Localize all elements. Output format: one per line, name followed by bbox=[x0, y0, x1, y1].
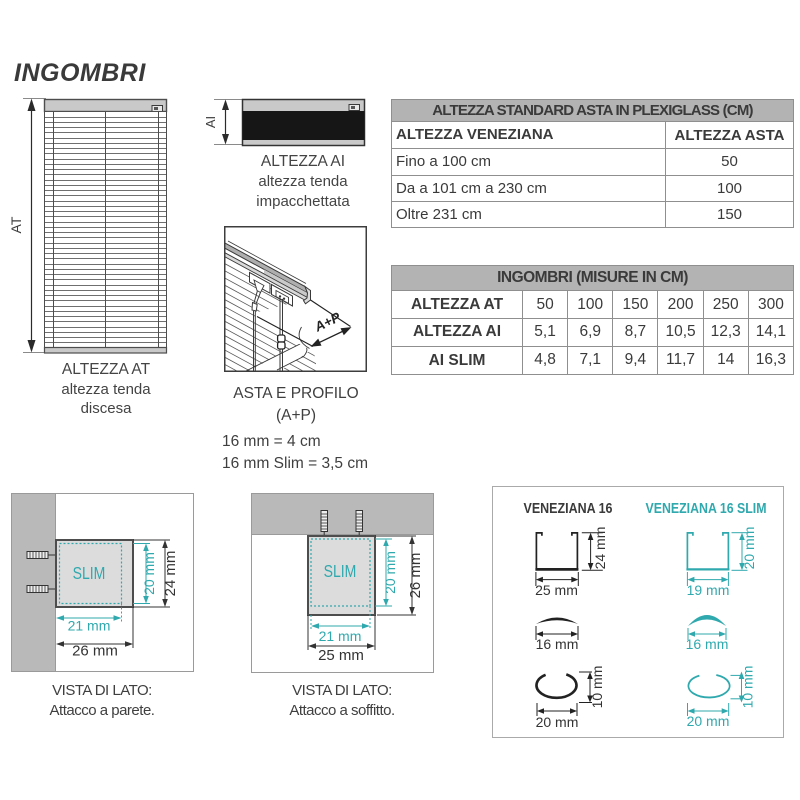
svg-text:AT: AT bbox=[8, 216, 24, 233]
svg-text:16 mm: 16 mm bbox=[686, 636, 729, 652]
svg-text:24 mm: 24 mm bbox=[592, 527, 608, 570]
svg-text:26 mm: 26 mm bbox=[72, 643, 118, 660]
svg-text:10 mm: 10 mm bbox=[740, 666, 756, 709]
svg-text:25 mm: 25 mm bbox=[535, 582, 578, 598]
svg-text:25 mm: 25 mm bbox=[318, 647, 364, 664]
svg-text:21 mm: 21 mm bbox=[68, 618, 111, 634]
svg-text:19 mm: 19 mm bbox=[687, 582, 730, 598]
svg-text:VENEZIANA 16: VENEZIANA 16 bbox=[524, 500, 613, 517]
svg-text:20 mm: 20 mm bbox=[141, 552, 157, 595]
svg-text:SLIM: SLIM bbox=[73, 563, 106, 583]
svg-text:24 mm: 24 mm bbox=[162, 551, 179, 597]
svg-text:20 mm: 20 mm bbox=[687, 713, 730, 729]
svg-text:10 mm: 10 mm bbox=[589, 666, 605, 709]
svg-text:20 mm: 20 mm bbox=[741, 527, 757, 570]
svg-text:AI: AI bbox=[205, 116, 218, 128]
svg-text:VENEZIANA 16 SLIM: VENEZIANA 16 SLIM bbox=[646, 500, 767, 517]
svg-text:20 mm: 20 mm bbox=[382, 551, 398, 594]
svg-text:20 mm: 20 mm bbox=[536, 714, 579, 730]
svg-text:SLIM: SLIM bbox=[324, 561, 357, 581]
svg-text:21 mm: 21 mm bbox=[319, 628, 362, 644]
svg-text:16 mm: 16 mm bbox=[536, 636, 579, 652]
svg-text:26 mm: 26 mm bbox=[407, 553, 424, 599]
